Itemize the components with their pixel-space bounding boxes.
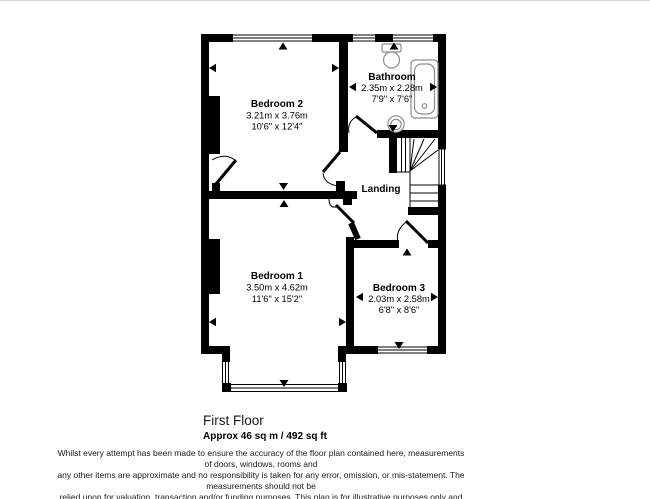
- door-cupboard-bedroom2: [212, 156, 236, 184]
- bedroom3-name: Bedroom 3: [373, 283, 426, 294]
- marker-bedroom1-up: [280, 200, 289, 207]
- bedroom3-imperial: 6'8" x 8'6": [379, 305, 420, 315]
- bathroom-imperial: 7'9" x 7'6": [372, 94, 413, 104]
- marker-bedroom2-right: [332, 64, 339, 72]
- bedroom1-metric: 3.50m x 4.62m: [246, 283, 308, 293]
- marker-bedroom1-down: [280, 380, 289, 387]
- window-bathroom-top-left: [353, 34, 375, 42]
- bay-window: [222, 361, 347, 392]
- staircase: [397, 138, 438, 207]
- marker-bedroom3-left: [356, 293, 363, 301]
- window-bedroom3-bottom: [378, 346, 427, 354]
- chimney-breast-bedroom2: [208, 96, 220, 154]
- bathroom-name: Bathroom: [368, 72, 415, 83]
- bathroom-metric: 2.35m x 2.28m: [361, 83, 423, 93]
- marker-bedroom2-up: [279, 43, 288, 50]
- marker-bedroom3-up: [403, 249, 412, 256]
- door-bedroom3: [397, 221, 428, 243]
- wash-basin: [388, 116, 404, 132]
- disclaimer-line: any other items are approximate and no r…: [56, 470, 466, 492]
- disclaimer-line: Whilst every attempt has been made to en…: [56, 448, 466, 470]
- bedroom2-metric: 3.21m x 3.76m: [246, 111, 308, 121]
- marker-bathroom-left: [349, 83, 356, 91]
- window-bathroom-top-right: [393, 34, 433, 42]
- door-bedroom2: [323, 152, 340, 186]
- bedroom2-imperial: 10'6" x 12'4": [252, 122, 303, 132]
- floor-plan-canvas: Bedroom 2 3.21m x 3.76m 10'6" x 12'4" Ba…: [0, 1, 650, 405]
- marker-bedroom3-right: [431, 293, 438, 301]
- floorplan-page: Bedroom 2 3.21m x 3.76m 10'6" x 12'4" Ba…: [0, 0, 650, 499]
- floor-area-label: Approx 46 sq m / 492 sq ft: [203, 431, 327, 442]
- marker-bedroom2-left: [209, 64, 216, 72]
- disclaimer: Whilst every attempt has been made to en…: [56, 448, 466, 499]
- marker-bedroom2-down: [279, 183, 288, 190]
- door-bathroom: [349, 116, 377, 133]
- chimney-breast-bedroom1: [208, 239, 220, 294]
- bedroom1-name: Bedroom 1: [251, 271, 304, 282]
- window-stairwell-right: [438, 149, 446, 185]
- landing-name: Landing: [362, 184, 401, 195]
- bedroom3-metric: 2.03m x 2.58m: [368, 294, 430, 304]
- window-bedroom2-top: [233, 34, 312, 42]
- bedroom1-imperial: 11'6" x 15'2": [252, 294, 302, 304]
- bedroom2-name: Bedroom 2: [251, 99, 304, 110]
- marker-bedroom1-left: [209, 318, 216, 326]
- floor-title: First Floor: [203, 413, 264, 428]
- marker-bedroom1-right: [339, 318, 346, 326]
